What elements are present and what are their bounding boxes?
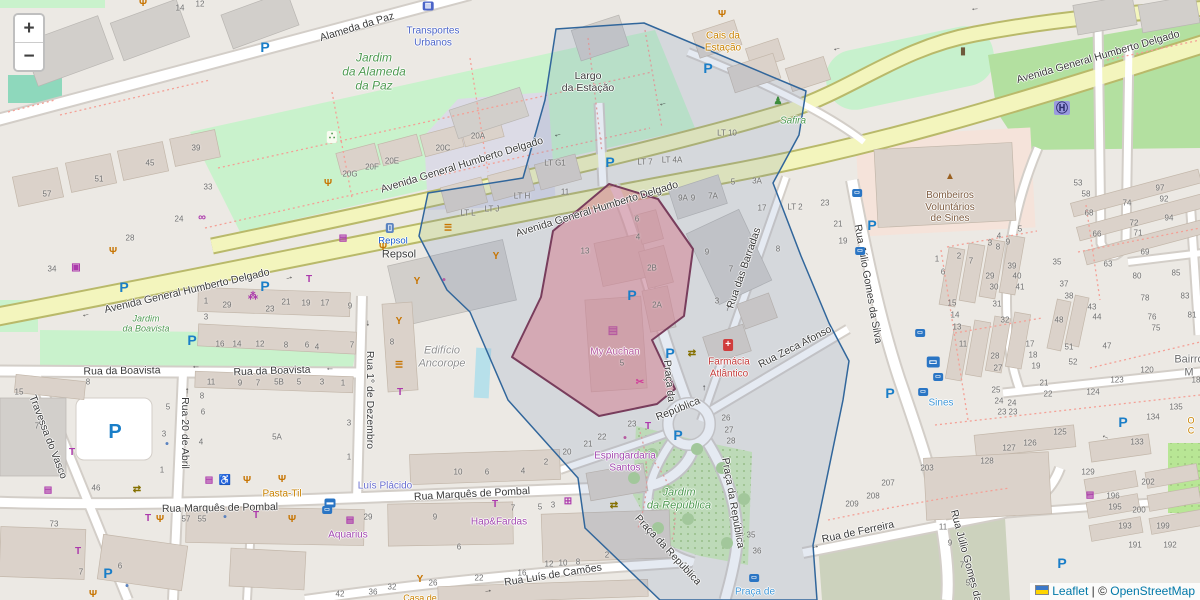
house-number: 22 bbox=[475, 574, 484, 583]
house-number: 12 bbox=[545, 560, 554, 569]
place-label: My Auchan bbox=[590, 346, 639, 358]
house-number: 10 bbox=[454, 468, 463, 477]
house-number: 5 bbox=[731, 178, 735, 187]
place-label: Pasta-Til bbox=[262, 488, 301, 500]
oneway-arrow-icon: → bbox=[1099, 432, 1111, 444]
house-number: 24 bbox=[175, 215, 184, 224]
house-number: 18 bbox=[1192, 376, 1200, 385]
place-label: Largo da Estação bbox=[562, 70, 615, 94]
parking-icon: P bbox=[1118, 415, 1127, 429]
oneway-arrow-icon: → bbox=[283, 271, 294, 282]
poi-dot-blue-icon: ● bbox=[165, 441, 169, 448]
house-number: 23 bbox=[998, 408, 1007, 417]
house-number: 21 bbox=[584, 440, 593, 449]
house-number: 5 bbox=[166, 403, 170, 412]
oneway-arrow-icon: → bbox=[699, 384, 708, 393]
street-label: Praça da República bbox=[719, 457, 747, 549]
house-number: LT 10 bbox=[717, 129, 737, 138]
tv-icon: ▣ bbox=[71, 263, 80, 273]
house-number: 8 bbox=[776, 245, 780, 254]
house-number: 69 bbox=[1141, 248, 1150, 257]
place-label: Edifício Ancorope bbox=[418, 344, 465, 369]
zoom-out-button[interactable]: − bbox=[15, 43, 43, 70]
house-number: 28 bbox=[991, 352, 1000, 361]
house-number: 17 bbox=[321, 299, 330, 308]
fast-food-icon: ☰ bbox=[395, 361, 403, 370]
house-number: 35 bbox=[1053, 258, 1062, 267]
house-number: 11 bbox=[939, 523, 947, 532]
house-number: 1 bbox=[341, 379, 345, 388]
house-number: 3 bbox=[320, 378, 324, 387]
oneway-arrow-icon: → bbox=[483, 585, 493, 595]
house-number: 9 bbox=[1006, 238, 1010, 247]
zoom-control: + − bbox=[13, 13, 45, 72]
house-number: 36 bbox=[369, 588, 378, 597]
taxi-icon: ▬ bbox=[325, 499, 336, 508]
parking-icon: P bbox=[119, 280, 128, 294]
money-exchange-icon: ⇄ bbox=[610, 501, 618, 511]
house-number: 39 bbox=[192, 144, 201, 153]
place-label: Hap&Fardas bbox=[471, 516, 527, 528]
house-number: 200 bbox=[1132, 506, 1145, 515]
house-number: 15 bbox=[15, 388, 24, 397]
parking-icon: P bbox=[605, 155, 614, 169]
restaurant-icon: Ψ bbox=[109, 247, 117, 257]
house-number: 135 bbox=[1169, 403, 1182, 412]
house-number: 29 bbox=[986, 272, 995, 281]
house-number: LT 2 bbox=[787, 203, 802, 212]
bus-stop-icon: ▭ bbox=[855, 247, 865, 255]
house-number: 4 bbox=[521, 467, 525, 476]
leaflet-link[interactable]: Leaflet bbox=[1052, 584, 1088, 598]
house-number: 22 bbox=[598, 433, 607, 442]
house-number: 196 bbox=[1106, 492, 1119, 501]
oneway-arrow-icon: → bbox=[810, 541, 821, 552]
restaurant-icon: Ψ bbox=[718, 10, 726, 20]
house-number: 20 bbox=[563, 448, 572, 457]
house-number: 124 bbox=[1086, 388, 1099, 397]
house-number: 28 bbox=[126, 234, 135, 243]
house-number: 42 bbox=[336, 590, 345, 599]
house-number: 26 bbox=[722, 414, 731, 423]
clothes-icon: T bbox=[75, 547, 81, 557]
parking-icon: P bbox=[673, 428, 682, 442]
helipad-icon: Ⓗ bbox=[1054, 101, 1070, 115]
house-number: 71 bbox=[1134, 229, 1143, 238]
shop-icon: ▤ bbox=[346, 516, 355, 525]
house-number: 52 bbox=[1069, 358, 1078, 367]
house-number: 17 bbox=[1026, 340, 1035, 349]
clothes-icon: T bbox=[253, 511, 259, 521]
street-label: Rua da Boavista bbox=[83, 364, 160, 377]
house-number: 40 bbox=[1013, 272, 1022, 281]
house-number: 13 bbox=[581, 247, 590, 256]
house-number: 7 bbox=[960, 561, 964, 570]
oneway-arrow-icon: → bbox=[80, 310, 91, 321]
house-number: 28 bbox=[727, 437, 736, 446]
map-labels: Alameda da PazAvenida General Humberto D… bbox=[0, 0, 1200, 600]
house-number: 8 bbox=[390, 338, 394, 347]
house-number: 5B bbox=[274, 378, 284, 387]
ukraine-flag-icon bbox=[1035, 585, 1049, 595]
oneway-arrow-icon: → bbox=[552, 130, 563, 141]
house-number: 2A bbox=[652, 301, 662, 310]
house-number: 5 bbox=[538, 503, 542, 512]
house-number: 8 bbox=[576, 558, 580, 567]
house-number: 127 bbox=[1002, 444, 1015, 453]
house-number: LT 7 bbox=[637, 158, 652, 167]
parking-icon: P bbox=[1057, 556, 1066, 570]
house-number: 3 bbox=[204, 313, 208, 322]
place-label: Sines bbox=[928, 397, 953, 409]
bus-stop-icon: ▭ bbox=[852, 189, 862, 197]
restaurant-icon: Ψ bbox=[89, 590, 97, 600]
parking-icon: P bbox=[103, 566, 112, 580]
osm-link[interactable]: OpenStreetMap bbox=[1110, 584, 1195, 598]
house-number: 53 bbox=[1074, 179, 1083, 188]
clothes-icon: T bbox=[492, 500, 498, 510]
house-number: 29 bbox=[364, 513, 373, 522]
house-number: 207 bbox=[881, 479, 894, 488]
house-number: 24 bbox=[1008, 399, 1017, 408]
house-number: 17 bbox=[758, 204, 767, 213]
house-number: 202 bbox=[1141, 478, 1154, 487]
house-number: 3 bbox=[988, 239, 992, 248]
house-number: 97 bbox=[1156, 184, 1165, 193]
place-label: Jardim da Alameda da Paz bbox=[342, 51, 406, 92]
fire-station-icon: ▲ bbox=[945, 172, 955, 182]
house-number: 1 bbox=[935, 255, 939, 264]
house-number: 4 bbox=[636, 233, 640, 242]
house-number: 126 bbox=[1023, 439, 1036, 448]
house-number: 9 bbox=[433, 513, 437, 522]
house-number: 20C bbox=[436, 144, 451, 153]
house-number: 20F bbox=[365, 163, 379, 172]
place-label: Farmácia Atlântico bbox=[708, 357, 750, 380]
house-number: 39 bbox=[1008, 262, 1017, 271]
oneway-arrow-icon: → bbox=[832, 45, 843, 56]
house-number: 57 bbox=[43, 190, 52, 199]
restaurant-icon: Ψ bbox=[139, 0, 147, 9]
clothes-icon: T bbox=[397, 388, 403, 398]
house-number: 125 bbox=[1053, 428, 1066, 437]
house-number: 74 bbox=[1123, 199, 1132, 208]
house-number: 43 bbox=[1088, 303, 1097, 312]
house-number: 33 bbox=[204, 183, 213, 192]
house-number: 30 bbox=[990, 283, 999, 292]
poi-dot-blue-icon: ● bbox=[223, 514, 227, 521]
house-number: 208 bbox=[866, 492, 879, 501]
house-number: 72 bbox=[1130, 219, 1139, 228]
house-number: 1 bbox=[204, 297, 208, 306]
house-number: 6 bbox=[118, 562, 122, 571]
shop-icon: ▤ bbox=[339, 234, 348, 243]
house-number: 14 bbox=[176, 4, 185, 13]
house-number: 6 bbox=[305, 341, 309, 350]
street-label: Rua Marquês de Pombal bbox=[162, 501, 278, 515]
clothes-icon: T bbox=[645, 422, 651, 432]
clothes-icon: T bbox=[306, 275, 312, 285]
street-label: Avenida General Humberto Delgado bbox=[379, 135, 544, 196]
oneway-arrow-icon: → bbox=[192, 364, 201, 373]
shop-icon: ▤ bbox=[44, 486, 53, 495]
house-number: 57 bbox=[182, 515, 191, 524]
house-number: 81 bbox=[1188, 311, 1197, 320]
place-label: Jardim da República bbox=[647, 486, 711, 511]
house-number: 36 bbox=[753, 547, 762, 556]
house-number: 31 bbox=[993, 300, 1002, 309]
house-number: 73 bbox=[50, 520, 59, 529]
house-number: 15 bbox=[948, 299, 957, 308]
parking-icon: P bbox=[260, 40, 269, 54]
pharmacy-icon: + bbox=[723, 339, 733, 351]
restaurant-icon: Ψ bbox=[324, 179, 332, 189]
house-number: 4 bbox=[997, 232, 1001, 241]
house-number: 68 bbox=[1085, 209, 1094, 218]
bus-stop-icon: ▭ bbox=[749, 574, 759, 582]
house-number: 23 bbox=[1009, 408, 1018, 417]
shop-icon: ▤ bbox=[205, 476, 214, 485]
street-label: Rua da Boavista bbox=[233, 364, 310, 379]
house-number: 209 bbox=[845, 500, 858, 509]
street-label: Praça da República bbox=[632, 512, 703, 587]
house-number: 7 bbox=[35, 422, 39, 431]
house-number: 7A bbox=[708, 192, 718, 201]
street-label: Praça da bbox=[661, 359, 677, 402]
house-number: 191 bbox=[1128, 541, 1141, 550]
poi-dot-blue-icon: ● bbox=[125, 583, 129, 590]
house-number: 34 bbox=[48, 265, 57, 274]
house-number: 7 bbox=[729, 265, 733, 274]
house-number: LT L bbox=[460, 209, 475, 218]
house-number: 3A bbox=[752, 177, 762, 186]
house-number: 9 bbox=[705, 248, 709, 257]
house-number: 11 bbox=[207, 378, 215, 387]
house-number: 58 bbox=[1082, 190, 1091, 199]
house-number: 120 bbox=[1140, 366, 1153, 375]
parking-large-icon: P bbox=[108, 422, 121, 442]
bar-icon: Y bbox=[414, 277, 421, 287]
house-number: 66 bbox=[1093, 230, 1102, 239]
pet-icon: ⁂ bbox=[248, 292, 258, 302]
house-number: 9A bbox=[678, 194, 688, 203]
house-number: 45 bbox=[146, 159, 155, 168]
house-number: 9 bbox=[691, 194, 695, 203]
house-number: 21 bbox=[1040, 379, 1049, 388]
house-number: 80 bbox=[1133, 272, 1142, 281]
house-number: 11 bbox=[561, 188, 569, 197]
house-number: 2 bbox=[544, 458, 548, 467]
house-number: 2B bbox=[647, 264, 657, 273]
house-number: 1 bbox=[347, 453, 351, 462]
parking-icon: P bbox=[260, 279, 269, 293]
house-number: 23 bbox=[266, 305, 275, 314]
house-number: 123 bbox=[1110, 376, 1123, 385]
house-number: 83 bbox=[1181, 292, 1190, 301]
parking-icon: P bbox=[885, 386, 894, 400]
copyright-symbol: © bbox=[1098, 584, 1107, 598]
parking-icon: P bbox=[867, 218, 876, 232]
oneway-arrow-icon: → bbox=[365, 319, 374, 328]
restaurant-icon: Ψ bbox=[278, 475, 286, 485]
restaurant-icon: Ψ bbox=[243, 476, 251, 486]
house-number: 6 bbox=[941, 268, 945, 277]
house-number: 8 bbox=[200, 392, 204, 401]
house-number: 8 bbox=[284, 341, 288, 350]
house-number: 12 bbox=[256, 340, 265, 349]
house-number: 5A bbox=[272, 433, 282, 442]
house-number: 199 bbox=[1156, 522, 1169, 531]
house-number: 63 bbox=[1104, 260, 1113, 269]
hairdresser-icon: ✂ bbox=[636, 378, 644, 388]
house-number: 47 bbox=[1103, 342, 1112, 351]
house-number: 5 bbox=[620, 359, 624, 368]
street-label: Rua 20 de Abril bbox=[179, 397, 191, 469]
street-label: Rua 1° de Dezembro bbox=[364, 351, 376, 449]
street-label: Rua Marquês de Pombal bbox=[414, 485, 531, 503]
house-number: 9 bbox=[348, 302, 352, 311]
house-number: 29 bbox=[223, 301, 232, 310]
house-number: 13 bbox=[953, 323, 962, 332]
house-number: 35 bbox=[747, 531, 756, 540]
house-number: 6 bbox=[201, 408, 205, 417]
parking-icon: P bbox=[187, 333, 196, 347]
house-number: 8 bbox=[996, 243, 1000, 252]
street-label: Travessa do Vasco bbox=[27, 393, 70, 480]
house-number: 21 bbox=[282, 298, 291, 307]
attribution-bar: Leaflet | © OpenStreetMap bbox=[1030, 583, 1200, 600]
house-number: 8 bbox=[86, 378, 90, 387]
restaurant-icon: Ψ bbox=[156, 515, 164, 525]
house-number: 46 bbox=[92, 484, 101, 493]
house-number: 51 bbox=[95, 175, 104, 184]
house-number: 3 bbox=[162, 430, 166, 439]
house-number: 7 bbox=[350, 341, 354, 350]
house-number: 32 bbox=[388, 583, 397, 592]
house-number: 41 bbox=[1016, 283, 1025, 292]
bus-stop-icon: ▭ bbox=[918, 388, 928, 396]
house-number: LT J bbox=[485, 205, 500, 214]
place-label: Espingardaria Santos bbox=[594, 451, 656, 474]
house-number: 10 bbox=[559, 559, 568, 568]
house-number: 20E bbox=[385, 157, 399, 166]
street-label: Avenida General Humberto Delgado bbox=[1015, 28, 1181, 86]
bar-icon: Y bbox=[396, 317, 403, 327]
house-number: 193 bbox=[1118, 522, 1131, 531]
place-label: Jardim da Boavista bbox=[122, 314, 169, 335]
shop-icon: ▤ bbox=[1086, 491, 1095, 500]
street-label: Rua Zeca Afonso bbox=[756, 323, 833, 370]
oneway-arrow-icon: → bbox=[326, 366, 335, 375]
house-number: 85 bbox=[1172, 269, 1181, 278]
oneway-arrow-icon: → bbox=[721, 302, 733, 314]
clothes-icon: T bbox=[145, 514, 151, 524]
street-label: República bbox=[654, 395, 702, 424]
house-number: 51 bbox=[1065, 343, 1074, 352]
house-number: 2 bbox=[605, 551, 609, 560]
house-number: 11 bbox=[959, 340, 967, 349]
restaurant-icon: Ψ bbox=[288, 515, 296, 525]
house-number: 18 bbox=[1029, 351, 1038, 360]
money-exchange-icon: ⇄ bbox=[688, 349, 696, 359]
house-number: 3 bbox=[551, 501, 555, 510]
bus-stop-icon: ▭ bbox=[915, 329, 925, 337]
house-number: 20A bbox=[471, 132, 485, 141]
restaurant-icon: Ψ bbox=[379, 243, 387, 253]
poi-dot-purple-icon: ● bbox=[442, 277, 446, 284]
sports-icon: ♟ bbox=[774, 97, 783, 107]
house-number: 7 bbox=[969, 257, 973, 266]
house-number: LT H bbox=[514, 192, 531, 201]
gift-icon: ⊞ bbox=[564, 497, 572, 507]
place-label: Aquarius bbox=[328, 529, 367, 541]
house-number: 22 bbox=[1044, 390, 1053, 399]
house-number: 7 bbox=[79, 568, 83, 577]
place-label: Praça de bbox=[735, 586, 775, 598]
house-number: 6 bbox=[635, 215, 639, 224]
house-number: 3 bbox=[715, 297, 719, 306]
house-number: 1 bbox=[160, 466, 164, 475]
street-label: Alameda da Paz bbox=[318, 10, 395, 44]
place-label: O C bbox=[1187, 416, 1196, 437]
house-number: 134 bbox=[1146, 413, 1159, 422]
house-number: 7 bbox=[511, 504, 515, 513]
house-number: 6 bbox=[457, 543, 461, 552]
house-number: 94 bbox=[1165, 214, 1174, 223]
house-number: 5 bbox=[297, 378, 301, 387]
house-number: LT 4A bbox=[662, 156, 683, 165]
place-label: Bombeiros Voluntários de Sines bbox=[925, 190, 974, 225]
zoom-in-button[interactable]: + bbox=[15, 15, 43, 43]
house-number: 92 bbox=[1160, 195, 1169, 204]
place-label: Cais da Estação bbox=[705, 31, 741, 54]
fuel-icon: ▯ bbox=[386, 223, 394, 233]
house-number: 9 bbox=[238, 379, 242, 388]
house-number: 19 bbox=[302, 299, 311, 308]
house-number: 19 bbox=[839, 237, 848, 246]
house-number: 48 bbox=[1055, 316, 1064, 325]
house-number: 12 bbox=[196, 0, 205, 9]
house-number: 7 bbox=[256, 379, 260, 388]
street-label: Rua Júlio Gomes da Silva bbox=[852, 223, 885, 344]
transit-icon: ▥ bbox=[423, 2, 434, 11]
house-number: 23 bbox=[821, 199, 830, 208]
house-number: 26 bbox=[429, 579, 438, 588]
parking-icon: P bbox=[665, 346, 674, 360]
map-canvas[interactable]: Alameda da PazAvenida General Humberto D… bbox=[0, 0, 1200, 600]
house-number: 203 bbox=[920, 464, 933, 473]
house-number: 32 bbox=[1001, 316, 1010, 325]
disabled-parking-icon: ♿ bbox=[219, 476, 231, 486]
supermarket-icon: ▤ bbox=[608, 326, 618, 337]
house-number: 76 bbox=[1148, 313, 1157, 322]
house-number: 25 bbox=[992, 386, 1001, 395]
house-number: 16 bbox=[216, 340, 225, 349]
oneway-arrow-icon: → bbox=[182, 387, 191, 396]
house-number: 19 bbox=[1032, 362, 1041, 371]
bar-icon: Y bbox=[417, 575, 424, 585]
house-number: 27 bbox=[994, 364, 1003, 373]
house-number: 38 bbox=[1065, 292, 1074, 301]
house-number: 4 bbox=[199, 438, 203, 447]
fast-food-icon: ☰ bbox=[444, 224, 452, 233]
place-label: Casa de bbox=[403, 593, 437, 600]
street-label: Avenida General Humberto Delgado bbox=[514, 179, 679, 240]
bus-station-icon: ▭ bbox=[927, 357, 940, 368]
house-number: 24 bbox=[995, 397, 1004, 406]
house-number: 4 bbox=[315, 343, 319, 352]
oneway-arrow-icon: → bbox=[970, 5, 980, 15]
